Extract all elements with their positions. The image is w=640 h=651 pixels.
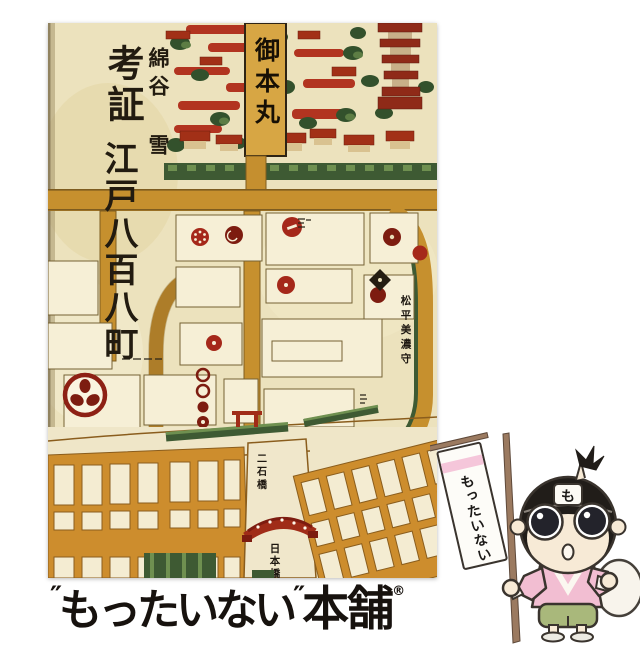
logo-open-quote: ″ (50, 583, 59, 610)
lower-town: 二石橋 日本橋 (48, 406, 437, 578)
ear-left (511, 520, 526, 535)
edo-map-illustration: 御本丸 (48, 23, 437, 578)
product-photo: 御本丸 (0, 0, 640, 651)
logo-suffix: 本舗 (302, 581, 392, 639)
head: も (511, 446, 626, 573)
ear-right (611, 520, 626, 535)
registered-mark: ® (392, 585, 405, 598)
headband-plate: も (554, 484, 582, 505)
castle-keep-text: 御本丸 (252, 36, 282, 130)
big-crest (65, 375, 105, 415)
banner: もったいない (430, 433, 516, 572)
hand-left (503, 580, 519, 596)
daimyo-label: 松平美濃守 (400, 294, 411, 367)
hand-right (601, 573, 617, 589)
flag-pole (503, 433, 520, 643)
mascot: もったいない (430, 420, 640, 651)
logo-name: もったいない (59, 581, 293, 641)
headband-text: も (561, 489, 575, 505)
store-logo: ″ もったいない ″ 本舗 ® (50, 581, 442, 647)
mascot-illustration: もったいない (430, 420, 640, 651)
castle-keep-label: 御本丸 (245, 23, 286, 156)
logo-close-quote: ″ (293, 583, 302, 610)
topknot (576, 446, 604, 480)
sandal-right (571, 633, 593, 642)
body (508, 563, 613, 642)
book-cover: 御本丸 (48, 23, 437, 578)
sandal-left (542, 633, 564, 642)
mouth (563, 545, 574, 560)
